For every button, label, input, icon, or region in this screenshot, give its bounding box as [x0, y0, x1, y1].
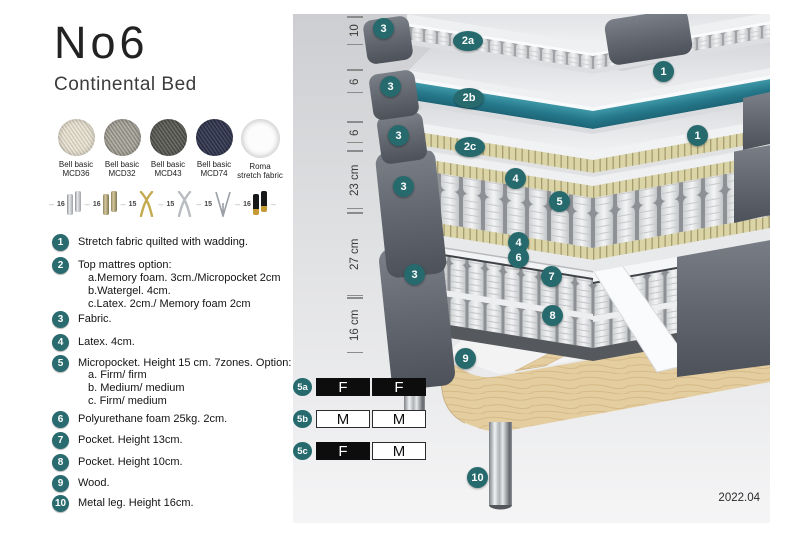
fabric-swatch-image [241, 119, 280, 158]
callout-2a: 2a [453, 31, 483, 51]
feature-item-9: 9 Wood. [52, 475, 110, 492]
dimension-label: 23 cm [349, 152, 361, 208]
leg-height: 16 [57, 201, 65, 208]
cylinder-leg-icon [103, 191, 118, 217]
feature-number: 9 [52, 475, 69, 492]
feature-text: Pocket. Height 13cm. [78, 432, 183, 446]
callout-2b: 2b [454, 88, 484, 108]
feature-item-10: 10 Metal leg. Height 16cm. [52, 495, 194, 512]
callout-10-leg: 10 [467, 467, 488, 488]
firmness-row-5c: 5c F M [293, 442, 426, 460]
callout-1-deck2b: 1 [653, 61, 674, 82]
swatch-code: stretch fabric [237, 171, 283, 180]
feature-item-1: 1 Stretch fabric quilted with wadding. [52, 234, 248, 251]
fabric-swatch-image [150, 119, 187, 156]
callout-3-topper2a: 3 [373, 18, 394, 39]
topper-2b-right-cap [743, 92, 770, 150]
box-right-cap [677, 233, 770, 377]
callout-4-latex-top: 4 [505, 168, 526, 189]
page-title: No6 [54, 20, 197, 65]
feature-number: 7 [52, 432, 69, 449]
feature-5-sub-a: a. Firm/ firm [88, 369, 147, 382]
leg-height: 16 [93, 201, 101, 208]
fabric-swatch-image [196, 119, 233, 156]
fabric-swatches: Bell basicMCD36 Bell basicMCD32 Bell bas… [53, 119, 283, 180]
fabric-swatch-mcd32: Bell basicMCD32 [99, 119, 145, 180]
feature-number: 1 [52, 234, 69, 251]
leg-height: 15 [204, 201, 212, 208]
leg-option-cross-silver: 15 [166, 191, 193, 217]
dimension-10: 10 [339, 16, 371, 45]
firmness-cell: F [372, 378, 426, 396]
feature-item-8: 8 Pocket. Height 10cm. [52, 454, 183, 471]
header: No6 Continental Bed [54, 20, 197, 96]
feature-text: Top mattres option: [78, 257, 172, 271]
feature-item-7: 7 Pocket. Height 13cm. [52, 432, 183, 449]
feature-text: Pocket. Height 10cm. [78, 454, 183, 468]
mattress-right-cap [734, 143, 770, 223]
callout-2c: 2c [455, 137, 485, 157]
swatch-name: Bell basic [99, 160, 145, 169]
firmness-label: 5b [293, 410, 312, 428]
hairpin-leg-icon [214, 191, 232, 217]
dimension-label: 6 [349, 71, 361, 92]
feature-text: Fabric. [78, 311, 112, 325]
feature-item-4: 4 Latex. 4cm. [52, 334, 135, 351]
leg-height: 15 [166, 201, 174, 208]
swatch-code: MCD36 [53, 169, 99, 178]
fabric-swatch-roma: Romastretch fabric [237, 119, 283, 180]
leg-option-hairpin: 15 [204, 191, 232, 217]
fabric-swatch-image [104, 119, 141, 156]
callout-3-topper2b: 3 [380, 76, 401, 97]
callout-3-topper2c: 3 [388, 125, 409, 146]
dimension-label: 16 cm [349, 299, 361, 352]
fabric-swatch-image [58, 119, 95, 156]
feature-text: Metal leg. Height 16cm. [78, 495, 194, 509]
feature-number: 8 [52, 454, 69, 471]
dimension-6b: 6 [339, 121, 371, 143]
feature-5-sub-c: c. Firm/ medium [88, 395, 167, 408]
feature-number: 5 [52, 355, 69, 372]
feature-text: Stretch fabric quilted with wadding. [78, 234, 248, 248]
swatch-name: Bell basic [145, 160, 191, 169]
feature-text: Wood. [78, 475, 110, 489]
cylinder-leg-icon [67, 191, 82, 217]
callout-6-pu-foam: 6 [508, 247, 529, 268]
feature-number: 3 [52, 311, 69, 328]
cross-leg-icon [138, 191, 155, 217]
firmness-cell: F [316, 378, 370, 396]
bed-cutaway-diagram: 10 6 6 23 cm 27 cm 16 cm 3 2a 1 3 2b 3 2… [293, 14, 770, 523]
callout-9-wood: 9 [455, 348, 476, 369]
feature-2-sub-a: a.Memory foam. 3cm./Micropocket 2cm [88, 272, 281, 285]
version-stamp: 2022.04 [718, 492, 760, 504]
feature-item-3: 3 Fabric. [52, 311, 112, 328]
swatch-name: Bell basic [191, 160, 237, 169]
firmness-row-5b: 5b M M [293, 410, 426, 428]
fabric-swatch-mcd43: Bell basicMCD43 [145, 119, 191, 180]
swatch-code: MCD32 [99, 169, 145, 178]
firmness-label: 5a [293, 378, 312, 396]
feature-number: 4 [52, 334, 69, 351]
firmness-label: 5c [293, 442, 312, 460]
leg-option-cylinder-bronze: 16 [93, 191, 118, 217]
callout-1-deck2c: 1 [687, 125, 708, 146]
fabric-swatch-mcd36: Bell basicMCD36 [53, 119, 99, 180]
swatch-code: MCD43 [145, 169, 191, 178]
firmness-row-5a: 5a F F [293, 378, 426, 396]
dimension-label: 10 [349, 18, 361, 44]
dimension-23cm: 23 cm [339, 150, 371, 209]
dimension-16cm: 16 cm [339, 297, 371, 353]
feature-number: 6 [52, 411, 69, 428]
callout-8-pocket10: 8 [542, 305, 563, 326]
leg-option-cross-gold: 15 [129, 191, 156, 217]
feature-5-sub-b: b. Medium/ medium [88, 382, 185, 395]
firmness-cell: M [372, 442, 426, 460]
feature-2-sub-c: c.Latex. 2cm./ Memory foam 2cm [88, 298, 251, 311]
front-leg [489, 422, 512, 510]
dimension-6a: 6 [339, 69, 371, 93]
dimension-label: 27 cm [349, 214, 361, 295]
feature-2-sub-b: b.Watergel. 4cm. [88, 285, 171, 298]
feature-text: Polyurethane foam 25kg. 2cm. [78, 411, 227, 425]
infographic-page: { "header": { "title": "No6", "subtitle"… [0, 0, 800, 533]
callout-7-pocket13: 7 [541, 266, 562, 287]
swatch-name: Roma [237, 162, 283, 171]
swatch-name: Bell basic [53, 160, 99, 169]
dimension-27cm: 27 cm [339, 212, 371, 296]
callout-5-micropocket: 5 [549, 191, 570, 212]
feature-number: 10 [52, 495, 69, 512]
feature-text: Micropocket. Height 15 cm. 7zones. Optio… [78, 355, 291, 369]
leg-option-black-gold: 16 [243, 191, 268, 217]
leg-height: 15 [129, 201, 137, 208]
feature-item-6: 6 Polyurethane foam 25kg. 2cm. [52, 411, 227, 428]
leg-option-cylinder-silver: 16 [57, 191, 82, 217]
callout-3-box: 3 [404, 264, 425, 285]
callout-3-mattress: 3 [393, 176, 414, 197]
leg-options: – 16 – 16 – 15 – 15 – 15 – 16 – [49, 191, 276, 217]
swatch-code: MCD74 [191, 169, 237, 178]
feature-text: Latex. 4cm. [78, 334, 135, 348]
feature-number: 2 [52, 257, 69, 274]
firmness-cell: M [372, 410, 426, 428]
cylinder-leg-icon [253, 191, 268, 217]
firmness-cell: M [316, 410, 370, 428]
dimension-label: 6 [349, 123, 361, 142]
page-subtitle: Continental Bed [54, 74, 197, 96]
leg-height: 16 [243, 201, 251, 208]
cross-leg-icon [176, 191, 193, 217]
fabric-swatch-mcd74: Bell basicMCD74 [191, 119, 237, 180]
firmness-cell: F [316, 442, 370, 460]
